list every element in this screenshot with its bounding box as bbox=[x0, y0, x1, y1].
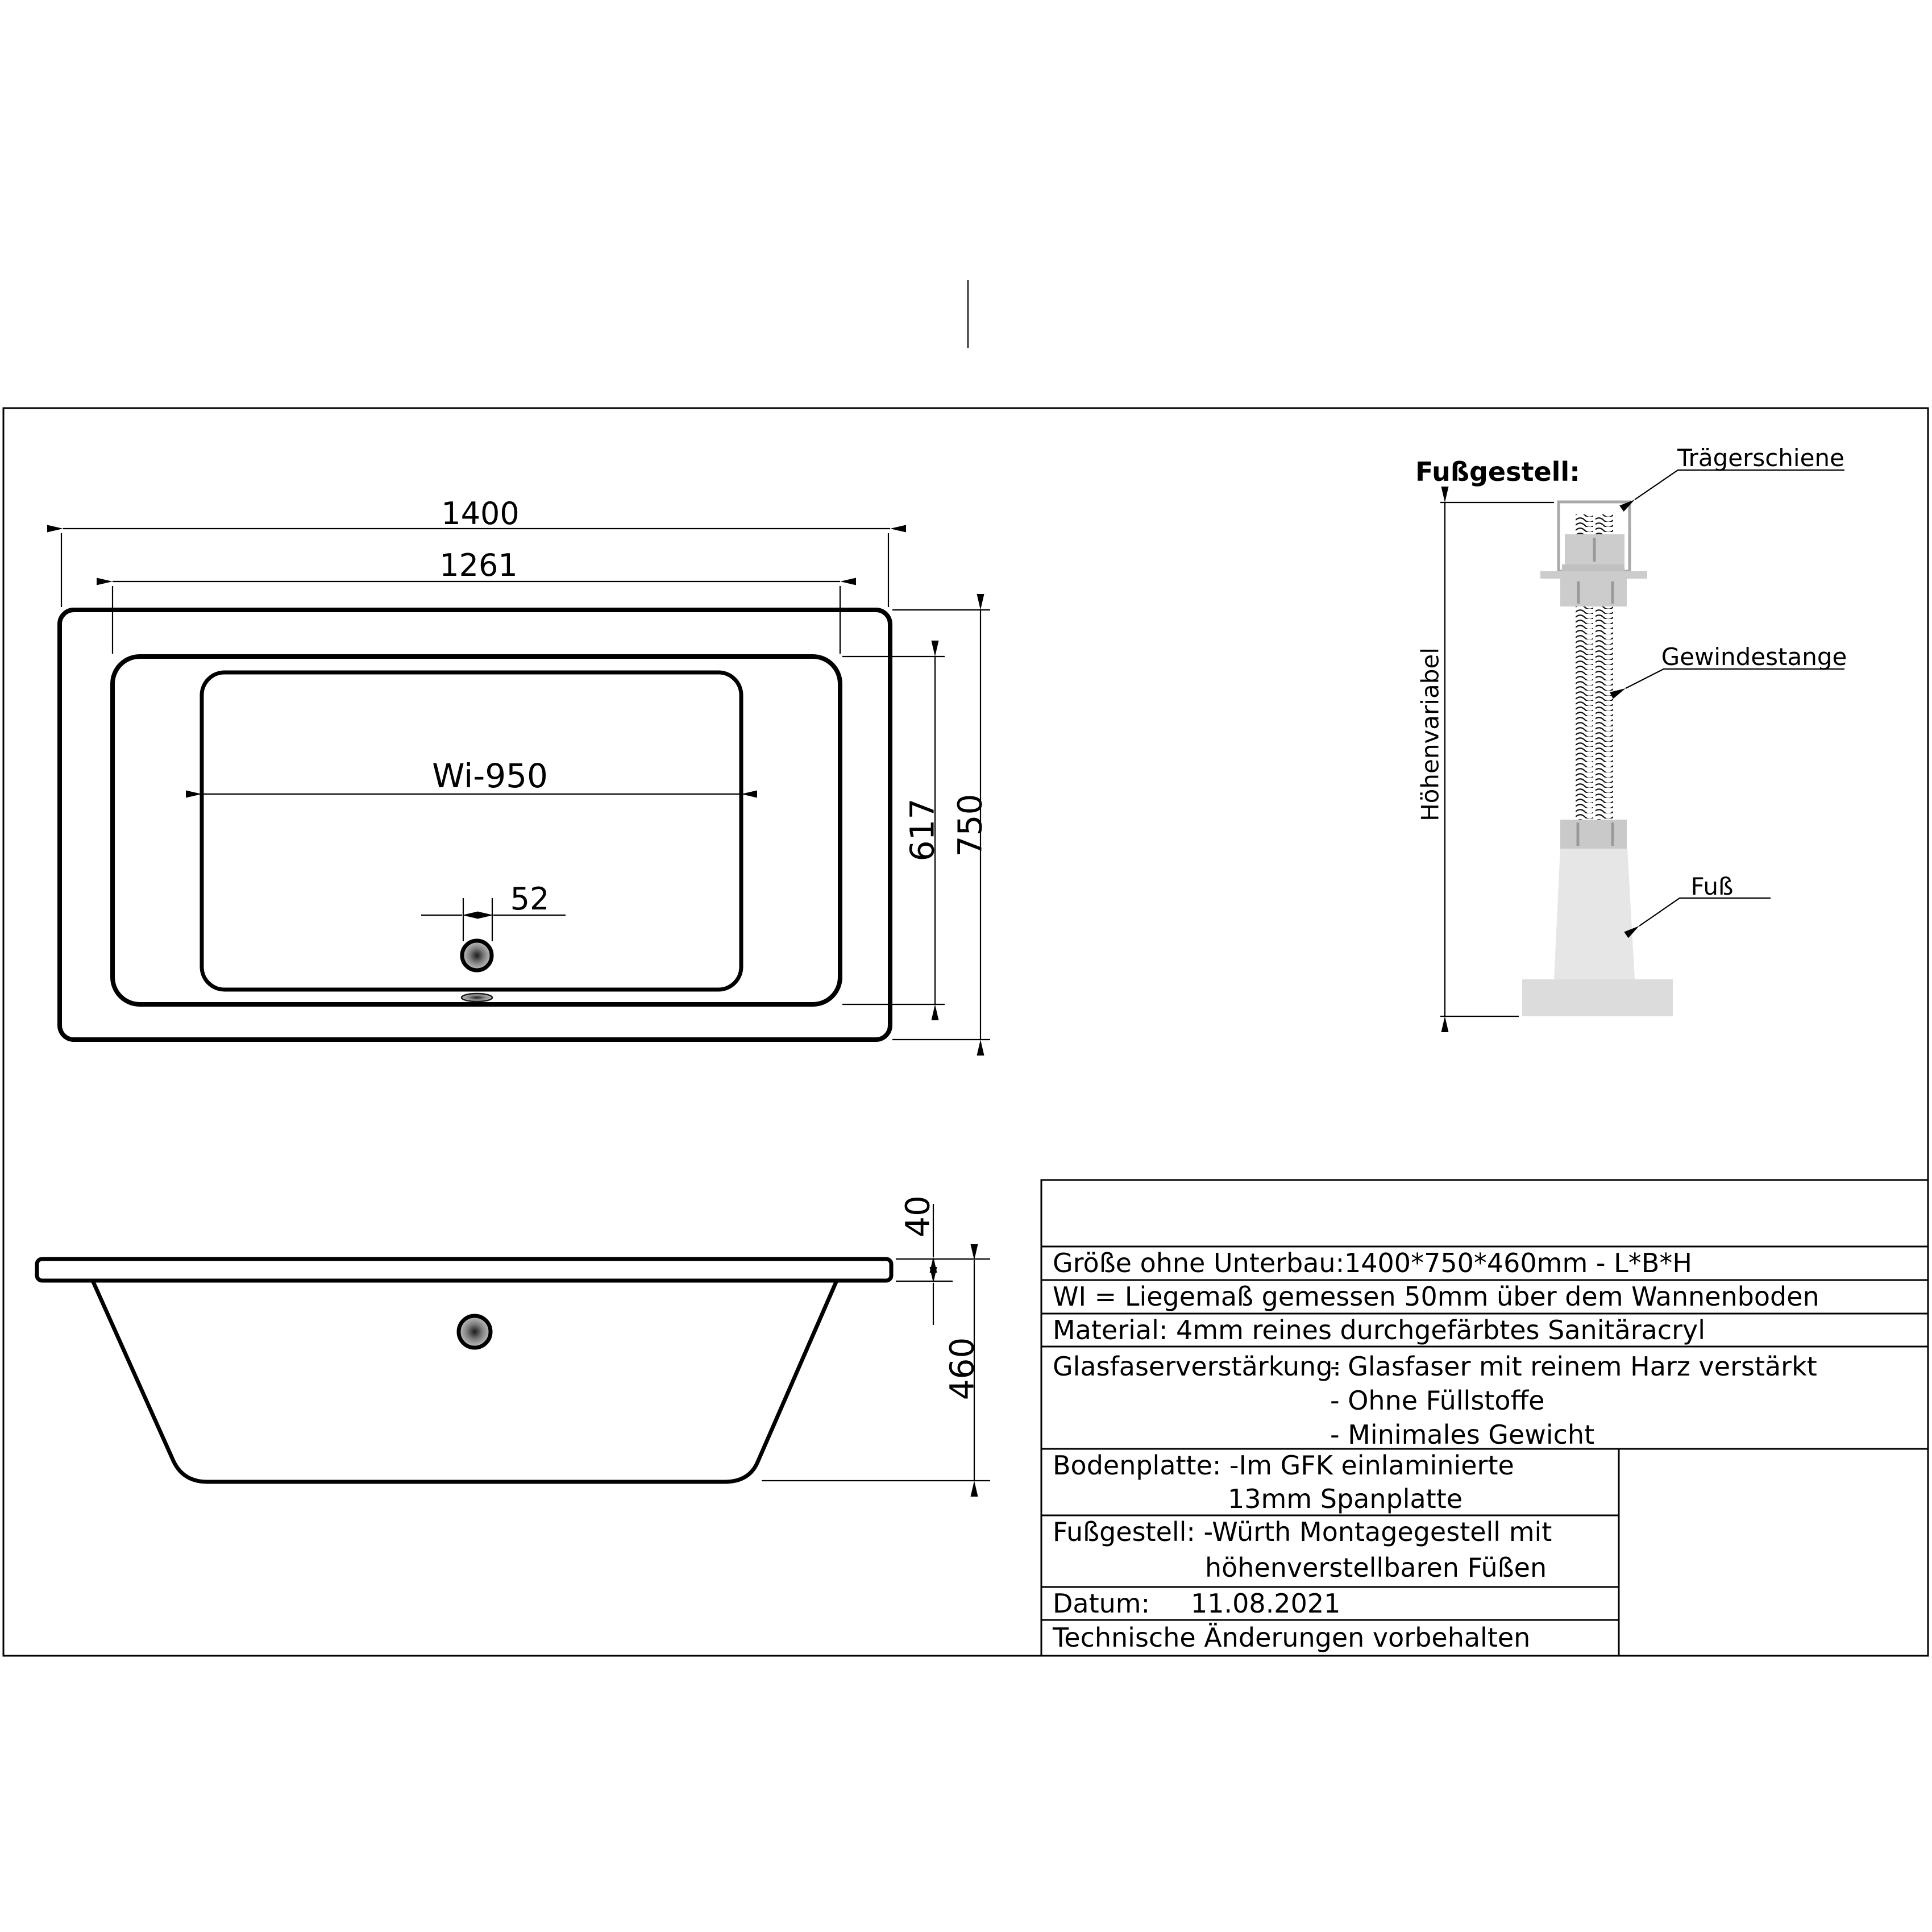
foot-assembly-detail: Fußgestell: Höhenvariabel Trägersc bbox=[1415, 444, 1847, 1016]
foot-cone bbox=[1554, 849, 1635, 979]
drawing-frame-border bbox=[3, 408, 1928, 1656]
table-fiberglass-item: - Ohne Füllstoffe bbox=[1330, 1385, 1544, 1416]
carrier-rail-label: Trägerschiene bbox=[1677, 444, 1844, 472]
lower-nut bbox=[1560, 820, 1627, 849]
table-baseplate-cont: 13mm Spanplatte bbox=[1228, 1484, 1462, 1514]
table-fiberglass-item: - Glasfaser mit reinem Harz verstärkt bbox=[1330, 1351, 1817, 1382]
table-footframe-label: Fußgestell: -Würth Montagegestell mit bbox=[1053, 1516, 1552, 1547]
table-wi-note: WI = Liegemaß gemessen 50mm über dem Wan… bbox=[1053, 1281, 1819, 1312]
tub-rim-side bbox=[37, 1259, 891, 1281]
tub-body-side bbox=[93, 1281, 837, 1482]
dim-lying-measure-text: Wi-950 bbox=[432, 757, 548, 795]
plan-view: 1400 1261 Wi-950 52 617 750 bbox=[60, 496, 990, 1040]
technical-drawing-page: 1400 1261 Wi-950 52 617 750 40 bbox=[0, 0, 1932, 1932]
side-view: 40 460 bbox=[37, 1195, 990, 1482]
drain-plan bbox=[462, 941, 492, 970]
long-nut bbox=[1560, 579, 1627, 606]
table-size-value: 1400*750*460mm - L*B*H bbox=[1344, 1248, 1692, 1278]
drain-side bbox=[459, 1316, 491, 1348]
dim-inner-rim-length-text: 1261 bbox=[439, 547, 517, 583]
carrier-rail-leader bbox=[1635, 470, 1844, 500]
table-footframe-cont: höhenverstellbaren Füßen bbox=[1205, 1552, 1547, 1583]
dim-inner-rim-width-text: 617 bbox=[903, 799, 941, 862]
table-size-label: Größe ohne Unterbau: bbox=[1053, 1248, 1344, 1278]
table-disclaimer: Technische Änderungen vorbehalten bbox=[1052, 1622, 1530, 1653]
overflow-slot-plan bbox=[462, 994, 492, 1002]
dim-drain-diameter-text: 52 bbox=[510, 881, 550, 917]
nut-flange bbox=[1562, 564, 1624, 571]
table-fiberglass-label: Glasfaserverstärkung: bbox=[1053, 1351, 1341, 1382]
foot-base-plate bbox=[1522, 979, 1673, 1016]
washer-plate bbox=[1540, 571, 1647, 579]
dim-rim-thickness-text: 40 bbox=[898, 1195, 937, 1237]
foot-label: Fuß bbox=[1691, 872, 1734, 900]
foot-assembly-title: Fußgestell: bbox=[1415, 456, 1580, 487]
table-material: Material: 4mm reines durchgefärbtes Sani… bbox=[1053, 1315, 1705, 1345]
dim-total-height-text: 460 bbox=[942, 1337, 981, 1401]
table-fiberglass-item: - Minimales Gewicht bbox=[1330, 1419, 1594, 1450]
height-variable-label: Höhenvariabel bbox=[1416, 647, 1444, 821]
threaded-rod-label: Gewindestange bbox=[1661, 643, 1847, 671]
dim-overall-length-text: 1400 bbox=[441, 496, 519, 531]
foot-leader bbox=[1639, 898, 1771, 926]
info-table: Größe ohne Unterbau: 1400*750*460mm - L*… bbox=[1041, 1180, 1928, 1656]
table-baseplate-label: Bodenplatte: -Im GFK einlaminierte bbox=[1053, 1450, 1514, 1481]
table-date-label: Datum: bbox=[1053, 1588, 1150, 1619]
drawing-canvas: 1400 1261 Wi-950 52 617 750 40 bbox=[0, 0, 1932, 1932]
table-date-value: 11.08.2021 bbox=[1191, 1588, 1340, 1619]
dim-overall-width-text: 750 bbox=[950, 794, 989, 857]
threaded-rod-leader bbox=[1626, 669, 1844, 688]
